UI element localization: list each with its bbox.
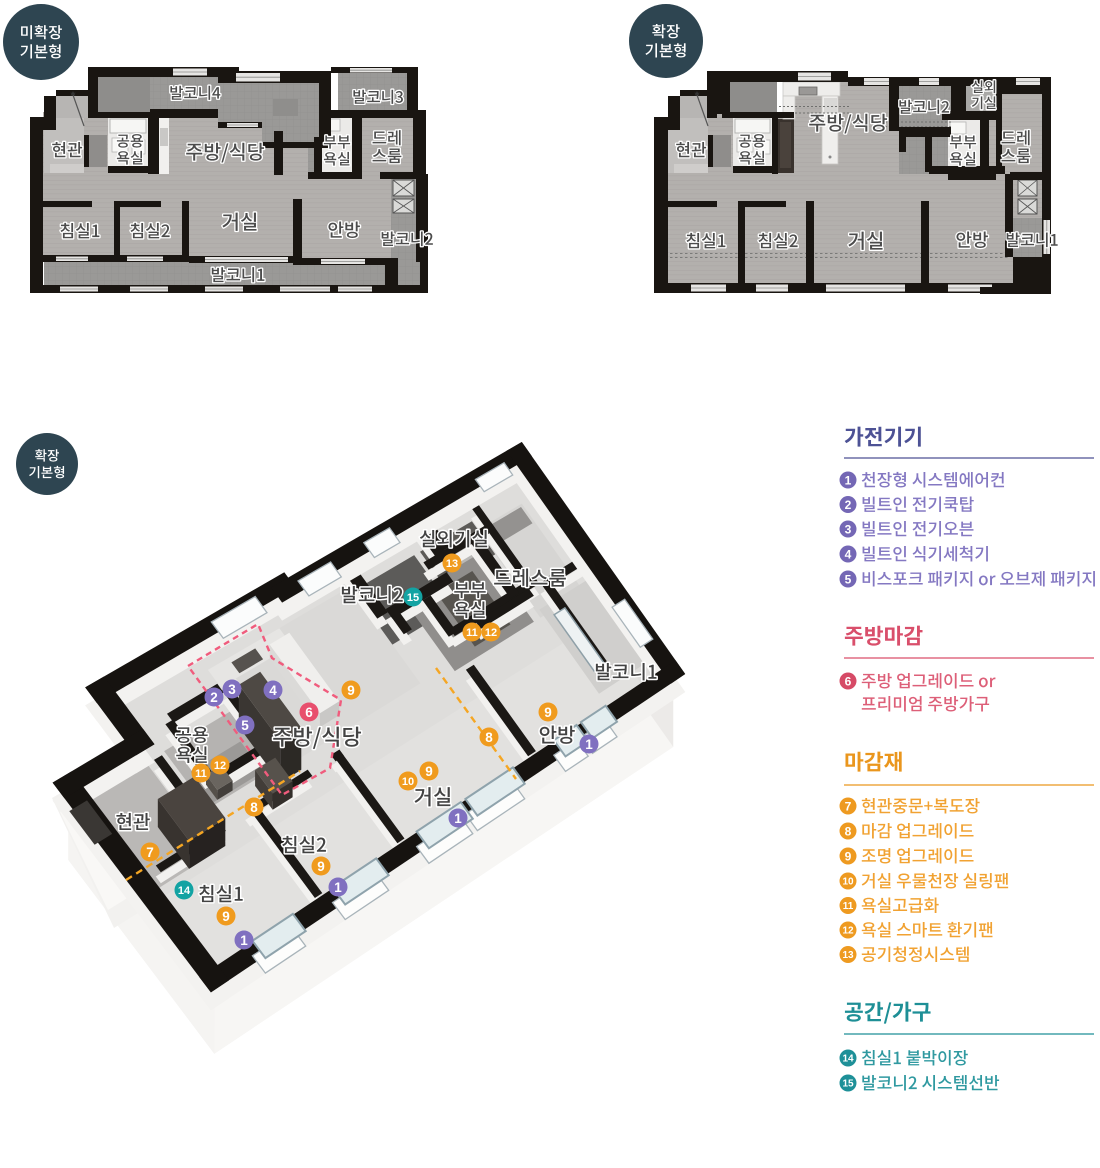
svg-text:6: 6 [305, 705, 313, 720]
svg-text:5: 5 [241, 718, 249, 733]
svg-text:4: 4 [269, 683, 277, 698]
svg-text:3: 3 [845, 522, 852, 536]
svg-text:7: 7 [845, 799, 852, 813]
svg-text:15: 15 [842, 1079, 854, 1090]
svg-text:1: 1 [845, 473, 852, 487]
svg-text:13: 13 [446, 558, 458, 570]
svg-text:1: 1 [585, 737, 593, 752]
svg-text:11: 11 [466, 627, 478, 639]
svg-text:1: 1 [240, 933, 248, 948]
svg-text:13: 13 [842, 950, 854, 961]
svg-text:8: 8 [845, 824, 852, 838]
svg-text:11: 11 [195, 768, 207, 780]
svg-text:7: 7 [146, 845, 154, 860]
svg-text:3: 3 [228, 682, 236, 697]
svg-text:2: 2 [845, 498, 852, 512]
svg-text:12: 12 [214, 760, 226, 772]
svg-text:9: 9 [544, 705, 552, 720]
svg-text:9: 9 [222, 909, 230, 924]
svg-text:6: 6 [845, 674, 852, 688]
svg-text:12: 12 [485, 627, 497, 639]
svg-text:12: 12 [842, 926, 854, 937]
svg-text:9: 9 [317, 859, 325, 874]
svg-text:4: 4 [845, 547, 852, 561]
svg-text:14: 14 [842, 1054, 854, 1065]
svg-text:9: 9 [845, 849, 852, 863]
svg-text:10: 10 [402, 776, 414, 788]
svg-text:9: 9 [347, 683, 355, 698]
svg-text:5: 5 [845, 572, 852, 586]
svg-text:14: 14 [178, 885, 191, 897]
svg-text:9: 9 [425, 764, 433, 779]
svg-text:10: 10 [842, 877, 854, 888]
svg-text:15: 15 [407, 592, 419, 604]
svg-text:1: 1 [334, 880, 342, 895]
svg-text:8: 8 [485, 730, 493, 745]
svg-text:2: 2 [210, 690, 218, 705]
svg-text:8: 8 [250, 800, 258, 815]
svg-text:11: 11 [843, 901, 854, 912]
svg-text:1: 1 [454, 811, 462, 826]
